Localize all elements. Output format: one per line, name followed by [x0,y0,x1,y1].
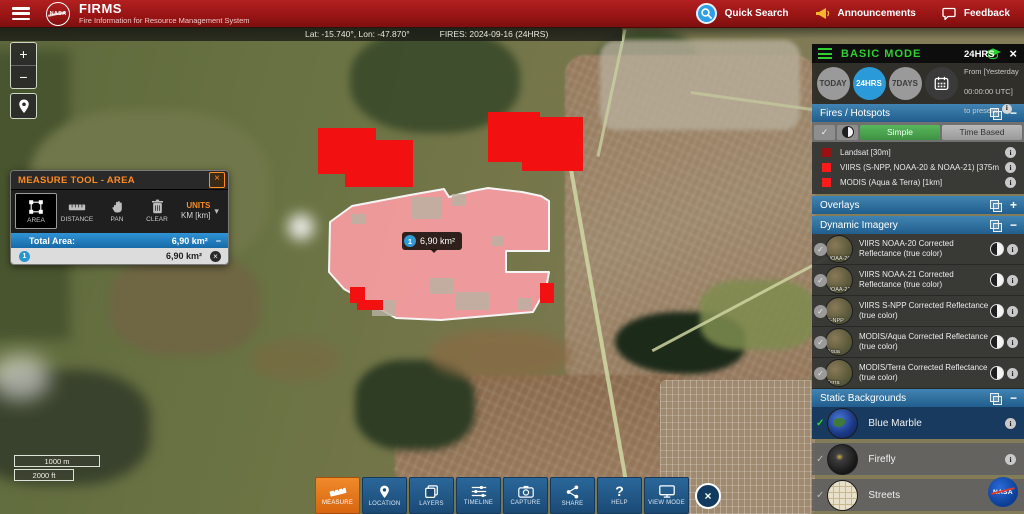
viirs-color-swatch [822,163,831,172]
thumbnail-label: NOAA-21 [827,287,851,293]
layer-checkbox[interactable]: ✓ [814,243,827,256]
collapse-total-button[interactable]: − [216,236,221,246]
area-tool-label: AREA [27,217,45,224]
map-scale: 1000 m 2000 ft [14,455,100,483]
modis-color-swatch [822,178,831,187]
range-title: 24HRS [964,49,1021,60]
distance-tool-button[interactable]: DISTANCE [57,194,97,228]
background-label: Blue Marble [868,418,999,429]
pan-tool-label: PAN [111,216,124,223]
info-icon[interactable]: i [1005,147,1016,158]
help-button[interactable]: ? HELP [597,477,642,514]
view-mode-button-label: VIEW MODE [648,500,685,506]
measure-tools-row: AREA DISTANCE PAN CLEAR [11,190,228,233]
measure-area-value: 6,90 km² [420,236,455,246]
measure-button[interactable]: MEASURE [315,477,360,514]
toolbar-close-button[interactable]: × [695,483,721,509]
scale-metric: 1000 m [14,455,100,467]
contrast-icon [842,126,854,138]
static-backgrounds-section-header[interactable]: Static Backgrounds − [812,389,1024,407]
check-icon: ✓ [816,454,824,465]
layers-icon [424,485,439,499]
layers-sidebar: BASIC MODE × TODAY 24HRS 7DAYS 24HRS Fro… [812,44,1024,514]
layer-checkbox[interactable]: ✓ [814,367,827,380]
layer-checkbox[interactable]: ✓ [814,305,827,318]
total-area-row: Total Area: 6,90 km² − [11,233,228,248]
7days-button[interactable]: 7DAYS [889,67,922,100]
remove-entry-button[interactable]: × [210,251,221,262]
background-label: Streets [868,490,999,501]
help-button-label: HELP [611,500,627,506]
total-area-value: 6,90 km² [172,236,208,246]
app-header: NASA FIRMS Fire Information for Resource… [0,0,1024,28]
measure-entry-row: 1 6,90 km² × [11,248,228,264]
units-value: KM [km] [181,211,210,221]
entry-index-badge: 1 [19,251,30,262]
capture-button-label: CAPTURE [510,500,540,506]
imagery-row[interactable]: ✓ NOAA-20 VIIRS NOAA-20 Corrected Reflec… [812,234,1024,265]
imagery-row[interactable]: ✓ Terra MODIS/Terra Corrected Reflectanc… [812,358,1024,389]
fires-toggle-row: ✓ Simple Time Based [812,122,1024,142]
calendar-icon [934,76,949,91]
announcements-label: Announcements [838,8,916,19]
overlays-section-title: Overlays [820,200,990,211]
measure-index-badge: 1 [404,235,416,247]
contrast-icon[interactable] [990,366,1004,380]
timeline-button-label: TIMELINE [464,500,493,506]
landsat-color-swatch [822,148,831,157]
zoom-out-button[interactable]: − [11,65,36,88]
measure-button-label: MEASURE [322,500,353,506]
date-range-row: TODAY 24HRS 7DAYS 24HRS From [Yesterday … [812,63,1024,104]
imagery-layer-label: MODIS/Terra Corrected Reflectance (true … [859,363,990,383]
share-button[interactable]: SHARE [550,477,595,514]
share-icon [566,485,579,499]
camera-icon [518,485,534,498]
dynamic-imagery-list: ✓ NOAA-20 VIIRS NOAA-20 Corrected Reflec… [812,234,1024,389]
hand-icon [110,199,124,214]
app-branding: FIRMS Fire Information for Resource Mana… [79,2,250,25]
static-collapse-button[interactable]: − [1010,392,1017,404]
thumbnail-label: NOAA-20 [827,256,851,262]
share-button-label: SHARE [562,501,584,507]
chat-bubble-icon [942,7,956,20]
location-pin-icon [18,99,30,114]
layers-button[interactable]: LAYERS [409,477,454,514]
info-icon[interactable]: i [1005,162,1016,173]
imagery-layer-label: VIIRS NOAA-20 Corrected Reflectance (tru… [859,239,990,259]
overlays-expand-button[interactable]: + [1010,199,1017,211]
area-tool-button[interactable]: AREA [15,193,57,229]
background-row-blue-marble[interactable]: ✓ Blue Marble i [812,407,1024,439]
fires-section-title: Fires / Hotspots [820,108,990,119]
fires-layer-row[interactable]: MODIS (Aqua & Terra) [1km] i [812,175,1024,190]
sliders-icon [471,485,487,498]
clear-tool-button[interactable]: CLEAR [137,194,177,228]
chevron-down-icon: ▾ [214,206,219,217]
fires-layer-label: Landsat [30m] [840,148,999,157]
imagery-row[interactable]: ✓ S-NPP VIIRS S-NPP Corrected Reflectanc… [812,296,1024,327]
main-menu-button[interactable] [12,7,30,20]
location-button[interactable]: LOCATION [362,477,407,514]
layer-thumbnail: NOAA-20 [825,235,853,263]
streets-thumbnail [827,480,858,511]
background-row-firefly[interactable]: ✓ Firefly i [812,443,1024,475]
info-icon[interactable]: i [1007,306,1018,317]
mode-menu-button[interactable] [818,48,832,59]
quick-search-button[interactable]: Quick Search [696,3,789,24]
fires-collapse-button[interactable]: − [1010,107,1017,119]
check-icon: ✓ [816,418,824,429]
nasa-logo: NASA [46,2,70,26]
feedback-label: Feedback [964,8,1010,19]
total-area-label: Total Area: [29,236,172,246]
question-mark-icon: ? [615,485,624,498]
today-button[interactable]: TODAY [817,67,850,100]
firefly-thumbnail [827,444,858,475]
timeline-button[interactable]: TIMELINE [456,477,501,514]
location-button-label: LOCATION [369,501,401,507]
imagery-layer-label: VIIRS NOAA-21 Corrected Reflectance (tru… [859,270,990,290]
contrast-icon[interactable] [990,242,1004,256]
nasa-meatball-logo: NASA [988,477,1018,507]
contrast-icon[interactable] [990,335,1004,349]
fires-date-label: FIRES: 2024-09-16 (24HRS) [440,29,549,39]
thumbnail-label: Aqua [827,349,840,355]
scale-imperial: 2000 ft [14,469,74,481]
trash-icon [151,199,164,214]
megaphone-icon [815,7,830,20]
nasa-logo-text: NASA [993,489,1013,496]
entry-value: 6,90 km² [30,251,202,261]
zoom-in-button[interactable]: + [11,43,36,65]
area-icon [28,199,44,215]
layer-group-icon [990,393,1000,403]
measure-panel-title: MEASURE TOOL - AREA [18,175,209,186]
contrast-icon[interactable] [990,273,1004,287]
measure-panel-titlebar: MEASURE TOOL - AREA × [11,171,228,190]
map-status-bar: Lat: -15.740°, Lon: -47.870° FIRES: 2024… [0,27,622,41]
quick-search-label: Quick Search [725,8,789,19]
monitor-icon [659,485,675,498]
imagery-layer-label: MODIS/Aqua Corrected Reflectance (true c… [859,332,990,352]
info-icon[interactable]: i [1007,244,1018,255]
imagery-row[interactable]: ✓ NOAA-21 VIIRS NOAA-21 Corrected Reflec… [812,265,1024,296]
layer-thumbnail: S-NPP [825,297,853,325]
time-based-mode-button[interactable]: Time Based [942,125,1022,140]
check-icon: ✓ [816,490,824,501]
app-subtitle: Fire Information for Resource Management… [79,17,250,25]
dynamic-imagery-title: Dynamic Imagery [820,220,990,231]
fires-layer-row[interactable]: Landsat [30m] i [812,145,1024,160]
units-dropdown[interactable]: UNITS KM [km] ▾ [181,201,219,221]
imagery-row[interactable]: ✓ Aqua MODIS/Aqua Corrected Reflectance … [812,327,1024,358]
thumbnail-label: Terra [827,380,840,386]
simple-mode-button[interactable]: Simple [860,125,940,140]
firms-app: 1 6,90 km² NASA FIRMS Fire Information f… [0,0,1024,514]
fires-layer-label: MODIS (Aqua & Terra) [1km] [840,178,999,187]
24hrs-button[interactable]: 24HRS [853,67,886,100]
fires-contrast-toggle[interactable] [837,125,858,140]
fires-layer-list: Landsat [30m] i VIIRS (S-NPP, NOAA-20 & … [812,142,1024,194]
info-icon[interactable]: i [1007,368,1018,379]
info-icon[interactable]: i [1007,275,1018,286]
cursor-coordinates: Lat: -15.740°, Lon: -47.870° [305,29,410,39]
dynamic-collapse-button[interactable]: − [1010,219,1017,231]
pan-tool-button[interactable]: PAN [97,194,137,228]
fires-visibility-toggle[interactable]: ✓ [814,125,835,140]
layer-thumbnail: Aqua [825,328,853,356]
announcements-button[interactable]: Announcements [815,7,916,20]
info-icon[interactable]: i [1005,418,1016,429]
overlays-section-header[interactable]: Overlays + [812,196,1024,214]
zoom-controls: + − [10,42,37,89]
capture-button[interactable]: CAPTURE [503,477,548,514]
layer-group-icon [990,108,1000,118]
my-location-button[interactable] [10,93,37,119]
ruler-icon [68,200,86,214]
view-mode-button[interactable]: VIEW MODE [644,477,689,514]
layer-group-icon [990,200,1000,210]
background-label: Firefly [868,454,999,465]
clear-tool-label: CLEAR [146,216,168,223]
search-icon [696,3,717,24]
layer-thumbnail: Terra [825,359,853,387]
contrast-icon[interactable] [990,304,1004,318]
measure-area-tooltip: 1 6,90 km² [402,232,462,250]
ruler-icon [329,486,347,498]
feedback-button[interactable]: Feedback [942,7,1010,20]
fires-layer-label: VIIRS (S-NPP, NOAA-20 & NOAA-21) [375m] [840,163,999,172]
layer-checkbox[interactable]: ✓ [814,274,827,287]
layer-group-icon [990,220,1000,230]
measure-tool-panel: MEASURE TOOL - AREA × AREA DISTANCE PA [10,170,229,265]
fires-layer-row[interactable]: VIIRS (S-NPP, NOAA-20 & NOAA-21) [375m] … [812,160,1024,175]
units-label: UNITS [181,201,210,211]
info-icon[interactable]: i [1005,454,1016,465]
info-icon[interactable]: i [1005,177,1016,188]
fire-footprint-cluster [318,112,583,187]
bottom-toolbar: MEASURE LOCATION LAYERS TIMELINE CAPTURE… [315,477,721,514]
calendar-button[interactable] [925,67,958,100]
info-icon[interactable]: i [1007,337,1018,348]
layer-thumbnail: NOAA-21 [825,266,853,294]
static-backgrounds-title: Static Backgrounds [820,393,990,404]
blue-marble-thumbnail [827,408,858,439]
measure-panel-close-button[interactable]: × [209,172,225,188]
thumbnail-label: S-NPP [827,318,844,324]
layers-button-label: LAYERS [419,501,443,507]
dynamic-imagery-section-header[interactable]: Dynamic Imagery − [812,216,1024,234]
imagery-layer-label: VIIRS S-NPP Corrected Reflectance (true … [859,301,990,321]
distance-tool-label: DISTANCE [61,216,93,223]
location-pin-icon [379,485,390,499]
app-title: FIRMS [79,2,250,16]
layer-checkbox[interactable]: ✓ [814,336,827,349]
nasa-logo-text: NASA [50,11,67,17]
